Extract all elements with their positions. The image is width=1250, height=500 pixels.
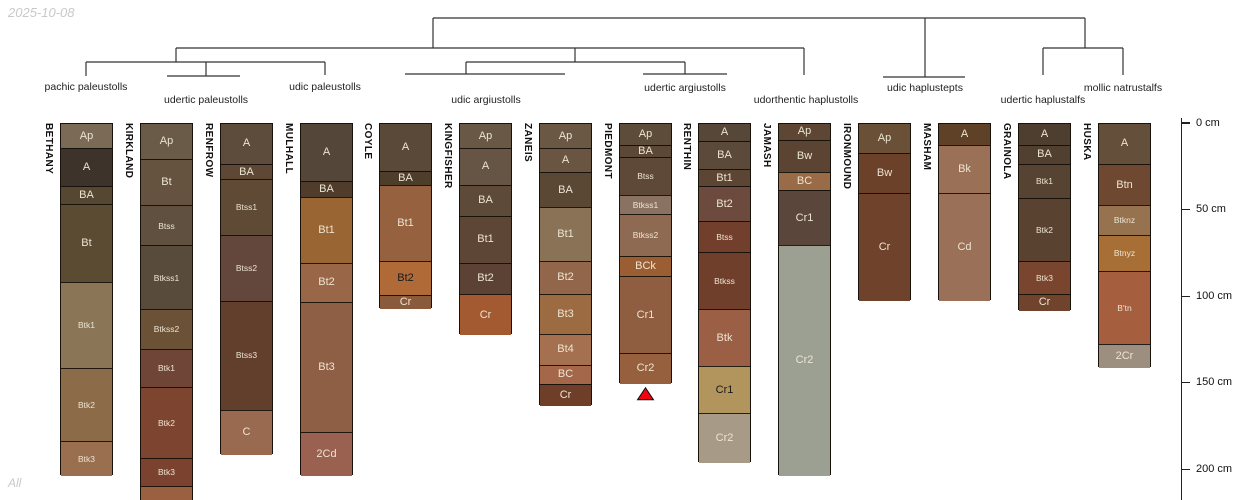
horizon-label: Ap (559, 131, 572, 142)
depth-axis-label: 100 cm (1196, 290, 1232, 302)
horizon-label: A (721, 127, 728, 138)
horizon-label: Btss3 (236, 351, 257, 360)
horizon-label: Btk1 (1036, 177, 1053, 186)
horizon-label: Btk3 (78, 455, 95, 464)
profile-name-zaneis: ZANEIS (522, 123, 533, 162)
horizon: Bt2 (380, 261, 431, 296)
horizon: Btss3 (221, 301, 272, 410)
depth-axis-label: 50 cm (1196, 203, 1226, 215)
horizon-label: BA (239, 167, 254, 178)
horizon-label: Cr2 (796, 355, 814, 366)
profile-column-jamash: ApBwBCCr1Cr2 (778, 123, 831, 475)
horizon-label: A (482, 161, 489, 172)
profile-name-kingfisher: KINGFISHER (442, 123, 453, 189)
horizon: A (61, 148, 112, 186)
horizon: Btk3 (141, 458, 192, 486)
horizon-label: Btn (1116, 180, 1133, 191)
horizon-label: Btk2 (1036, 226, 1053, 235)
horizon: Bt2 (699, 186, 750, 221)
horizon: BA (1019, 145, 1070, 164)
horizon: Cr2 (620, 353, 671, 384)
horizon-label: Btkss1 (154, 274, 180, 283)
profile-column-mulhall: ABABt1Bt2Bt32Cd (300, 123, 353, 475)
horizon-label: Btss2 (236, 264, 257, 273)
horizon-label: Ap (639, 129, 652, 140)
horizon: Cr (380, 295, 431, 309)
horizon-label: Bt1 (557, 229, 574, 240)
horizon: Cr1 (699, 366, 750, 413)
depth-axis-label: 150 cm (1196, 376, 1232, 388)
horizon-label: A (1121, 138, 1128, 149)
horizon-label: Ap (798, 126, 811, 137)
profile-column-renfrow: ABABtss1Btss2Btss3C (220, 123, 273, 454)
horizon-label: BA (638, 146, 653, 157)
depth-axis-line (1181, 118, 1182, 500)
horizon-label: Cr (1039, 297, 1051, 308)
horizon-label: A (1041, 129, 1048, 140)
depth-axis-tick (1181, 469, 1190, 470)
depth-axis-label: 200 cm (1196, 463, 1232, 475)
horizon: A (380, 124, 431, 171)
profile-name-ironmound: IRONMOUND (841, 123, 852, 189)
horizon-label: Bt1 (397, 218, 414, 229)
horizon (141, 486, 192, 500)
horizon-label: Btk3 (1036, 274, 1053, 283)
horizon: Btn (1099, 164, 1150, 206)
horizon: Btk3 (61, 441, 112, 476)
profile-name-huska: HUSKA (1081, 123, 1092, 161)
horizon-label: Btk2 (158, 419, 175, 428)
horizon: Cr2 (699, 413, 750, 463)
horizon-label: Btkss2 (154, 325, 180, 334)
horizon: Btk1 (1019, 164, 1070, 199)
horizon: Btss1 (221, 179, 272, 234)
horizon-label: Ap (160, 136, 173, 147)
depth-axis-tick (1181, 296, 1190, 297)
horizon: A (1019, 124, 1070, 145)
horizon-label: Ap (479, 131, 492, 142)
horizon: Bt1 (301, 197, 352, 263)
horizon-label: B'tn (1117, 304, 1131, 313)
horizon-label: Btkss (714, 277, 735, 286)
taxon-group-label: udic paleustolls (289, 81, 361, 93)
profile-column-piedmont: ApBABtssBtkss1Btkss2BCkCr1Cr2 (619, 123, 672, 383)
horizon: Ap (859, 124, 910, 153)
horizon: Btk3 (1019, 261, 1070, 294)
horizon-label: Btk3 (158, 468, 175, 477)
horizon: Bw (859, 153, 910, 193)
horizon-label: Bw (877, 168, 892, 179)
horizon: Btkss1 (620, 195, 671, 214)
horizon: C (221, 410, 272, 455)
horizon: BA (61, 186, 112, 203)
horizon: Btk1 (61, 282, 112, 369)
horizon-label: BA (79, 190, 94, 201)
horizon: A (939, 124, 990, 145)
horizon: Bk (939, 145, 990, 193)
horizon-label: Btk2 (78, 401, 95, 410)
horizon: BA (380, 171, 431, 185)
horizon: Btk2 (1019, 198, 1070, 260)
horizon: Ap (620, 124, 671, 145)
taxon-group-label: udic argiustolls (451, 94, 520, 106)
horizon-label: A (402, 142, 409, 153)
horizon: Bt3 (540, 294, 591, 334)
horizon-label: Bt1 (716, 173, 733, 184)
horizon-label: Btss (158, 222, 175, 231)
soil-taxonomy-dendrogram-figure: 2025-10-08 pachic paleustollsudertic pal… (0, 0, 1250, 500)
horizon: Bw (779, 140, 830, 173)
horizon: A (460, 148, 511, 184)
horizon-label: Cr2 (716, 433, 734, 444)
horizon: Bt (141, 159, 192, 206)
depth-axis-tick (1181, 382, 1190, 383)
profile-column-coyle: ABABt1Bt2Cr (379, 123, 432, 308)
horizon-label: C (243, 427, 251, 438)
horizon: Ap (779, 124, 830, 140)
profile-name-renfrow: RENFROW (203, 123, 214, 177)
horizon-label: Bt2 (477, 273, 494, 284)
horizon-label: BA (319, 184, 334, 195)
horizon: Btss (620, 157, 671, 195)
horizon: A (221, 124, 272, 164)
horizon: Ap (460, 124, 511, 148)
horizon: Cr (460, 294, 511, 336)
taxon-group-label: pachic paleustolls (45, 81, 128, 93)
horizon-label: Cr (480, 310, 492, 321)
horizon-label: Cr (400, 297, 412, 308)
horizon: BCk (620, 256, 671, 277)
footer-note: All (8, 476, 21, 490)
horizon: Cr1 (620, 276, 671, 352)
horizon-label: 2Cr (1116, 351, 1134, 362)
horizon: A (301, 124, 352, 181)
horizon-label: Cr (560, 390, 572, 401)
horizon: Bt1 (540, 207, 591, 261)
horizon-label: Cr (879, 242, 891, 253)
horizon-label: Bt3 (557, 309, 574, 320)
horizon-label: Ap (80, 131, 93, 142)
horizon: Btknz (1099, 205, 1150, 234)
depth-axis-tick (1181, 122, 1190, 123)
horizon-label: Btss (637, 172, 654, 181)
horizon: Btk1 (141, 349, 192, 387)
horizon: Btkss2 (620, 214, 671, 256)
profile-marker-triangle (638, 388, 654, 400)
profile-name-masham: MASHAM (921, 123, 932, 170)
profile-name-renthin: RENTHIN (681, 123, 692, 170)
horizon-label: A (323, 147, 330, 158)
horizon: Bt3 (301, 302, 352, 432)
horizon-label: A (243, 138, 250, 149)
horizon-label: BA (717, 150, 732, 161)
horizon: Cr1 (779, 190, 830, 245)
horizon-label: Bt2 (716, 199, 733, 210)
horizon-label: Cr1 (796, 213, 814, 224)
horizon-label: Bt (161, 177, 171, 188)
horizon-label: Ap (878, 133, 891, 144)
horizon: Bt (61, 204, 112, 282)
horizon: Btk (699, 309, 750, 366)
horizon-label: Cd (957, 242, 971, 253)
horizon-label: Btk1 (78, 321, 95, 330)
horizon: Btss (141, 205, 192, 245)
horizon-label: Btss1 (236, 203, 257, 212)
horizon: Cd (939, 193, 990, 300)
horizon-label: BCk (635, 261, 656, 272)
horizon: A (540, 148, 591, 172)
profile-column-huska: ABtnBtknzBtnyzB'tn2Cr (1098, 123, 1151, 367)
horizon: BC (779, 172, 830, 189)
horizon: BA (620, 145, 671, 157)
horizon: BC (540, 365, 591, 384)
horizon: Btss2 (221, 235, 272, 301)
horizon-label: Btnyz (1114, 249, 1135, 258)
horizon: A (1099, 124, 1150, 164)
horizon: Bt4 (540, 334, 591, 365)
horizon: 2Cr (1099, 344, 1150, 368)
horizon: Ap (540, 124, 591, 148)
horizon: BA (301, 181, 352, 197)
horizon-label: Bt2 (397, 273, 414, 284)
depth-axis-label: 0 cm (1196, 117, 1220, 129)
horizon-label: BA (558, 185, 573, 196)
profile-column-kirkland: ApBtBtssBtkss1Btkss2Btk1Btk2Btk3 (140, 123, 193, 500)
horizon-label: Bk (958, 164, 971, 175)
profile-name-bethany: BETHANY (43, 123, 54, 174)
taxon-group-label: udorthentic haplustolls (754, 94, 858, 106)
depth-axis-tick (1181, 209, 1190, 210)
horizon-label: 2Cd (316, 449, 336, 460)
horizon-label: A (562, 155, 569, 166)
horizon-label: Btknz (1114, 216, 1135, 225)
horizon-label: BC (558, 369, 573, 380)
profile-name-coyle: COYLE (362, 123, 373, 159)
horizon: 2Cd (301, 432, 352, 475)
horizon: BA (221, 164, 272, 180)
horizon: A (699, 124, 750, 141)
profile-column-zaneis: ApABABt1Bt2Bt3Bt4BCCr (539, 123, 592, 405)
taxon-group-label: udertic haplustalfs (1001, 94, 1086, 106)
horizon-label: Bt4 (557, 344, 574, 355)
horizon-label: Bt2 (557, 272, 574, 283)
horizon-label: A (961, 129, 968, 140)
horizon: Btkss2 (141, 309, 192, 349)
horizon: BA (699, 141, 750, 169)
profile-name-kirkland: KIRKLAND (123, 123, 134, 178)
horizon-label: Bt2 (318, 277, 335, 288)
horizon: Bt2 (460, 263, 511, 294)
horizon-label: Bt1 (318, 225, 335, 236)
profile-name-grainola: GRAINOLA (1001, 123, 1012, 180)
horizon: Bt2 (540, 261, 591, 294)
horizon: Btnyz (1099, 235, 1150, 271)
horizon: Bt1 (699, 169, 750, 186)
horizon: Btk2 (141, 387, 192, 458)
horizon-label: A (83, 162, 90, 173)
taxon-group-label: udic haplustepts (887, 82, 963, 94)
horizon-label: Bt (81, 238, 91, 249)
horizon-label: Btk (717, 333, 733, 344)
horizon: Bt1 (460, 216, 511, 263)
horizon: Bt2 (301, 263, 352, 303)
horizon-label: Bt1 (477, 234, 494, 245)
horizon-label: Bw (797, 151, 812, 162)
profile-column-bethany: ApABABtBtk1Btk2Btk3 (60, 123, 113, 475)
horizon-label: Bt3 (318, 362, 335, 373)
horizon: Btss (699, 221, 750, 252)
horizon: Bt1 (380, 185, 431, 261)
horizon: Btk2 (61, 368, 112, 441)
horizon: Btkss1 (141, 245, 192, 309)
profile-column-renthin: ABABt1Bt2BtssBtkssBtkCr1Cr2 (698, 123, 751, 462)
taxon-group-label: udertic paleustolls (164, 94, 248, 106)
horizon: Ap (61, 124, 112, 148)
horizon-label: BC (797, 176, 812, 187)
horizon-label: Cr1 (637, 310, 655, 321)
horizon-label: Btkss1 (633, 201, 659, 210)
horizon-label: BA (398, 173, 413, 184)
horizon: Btkss (699, 252, 750, 309)
horizon-label: Cr2 (637, 363, 655, 374)
horizon: Ap (141, 124, 192, 159)
horizon: Cr (859, 193, 910, 300)
profile-column-masham: ABkCd (938, 123, 991, 300)
horizon: Cr (540, 384, 591, 407)
horizon-label: Btkss2 (633, 231, 659, 240)
horizon-label: Btss (716, 233, 733, 242)
profile-column-grainola: ABABtk1Btk2Btk3Cr (1018, 123, 1071, 310)
horizon: B'tn (1099, 271, 1150, 344)
profile-column-kingfisher: ApABABt1Bt2Cr (459, 123, 512, 334)
profile-name-piedmont: PIEDMONT (602, 123, 613, 179)
profile-name-jamash: JAMASH (761, 123, 772, 168)
horizon-label: BA (478, 195, 493, 206)
horizon: Cr2 (779, 245, 830, 475)
horizon-label: BA (1037, 149, 1052, 160)
taxon-group-label: mollic natrustalfs (1084, 82, 1162, 94)
horizon: Cr (1019, 294, 1070, 311)
taxon-group-label: udertic argiustolls (644, 82, 726, 94)
horizon-label: Cr1 (716, 385, 734, 396)
horizon: BA (460, 185, 511, 216)
horizon-label: Btk1 (158, 364, 175, 373)
profile-column-ironmound: ApBwCr (858, 123, 911, 300)
horizon: BA (540, 172, 591, 207)
profile-name-mulhall: MULHALL (283, 123, 294, 174)
